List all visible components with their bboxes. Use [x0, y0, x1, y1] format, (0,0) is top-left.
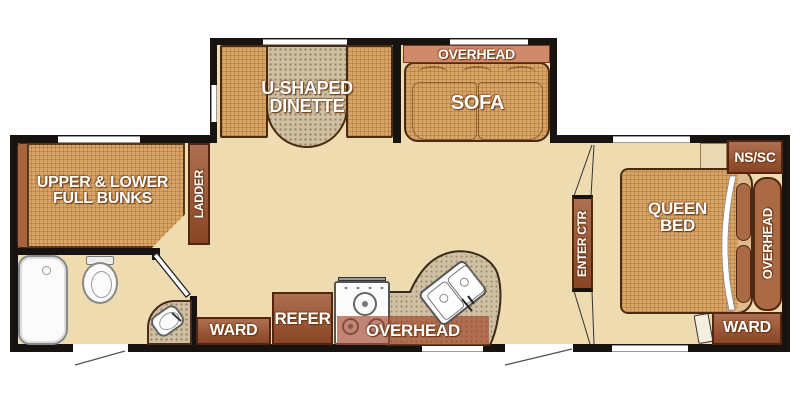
- nightstand-shirt-closet: NS/SC: [727, 140, 783, 174]
- queen-bed-label: QUEEN BED: [630, 196, 725, 238]
- floor-plan: UPPER & LOWER FULL BUNKS LADDER U-SHAPED…: [0, 0, 800, 400]
- dinette-label: U-SHAPED DINETTE: [247, 76, 367, 118]
- sofa-label: SOFA: [420, 88, 535, 118]
- tub-drain: [42, 266, 51, 275]
- toilet-bowl: [91, 271, 112, 298]
- sofa-overhead-cabinet: OVERHEAD: [403, 45, 550, 63]
- bedroom-overhead-label: OVERHEAD: [761, 208, 774, 279]
- enter-ctr-label: ENTER CTR: [576, 211, 588, 277]
- refer-label: REFER: [274, 310, 330, 327]
- bunks-label-text: UPPER & LOWER FULL BUNKS: [37, 175, 169, 208]
- bedroom-overhead-cabinet: OVERHEAD: [753, 177, 782, 311]
- refrigerator: REFER: [272, 292, 333, 345]
- ns-sc-label: NS/SC: [734, 150, 775, 164]
- queen-bed-label-text: QUEEN BED: [643, 200, 713, 235]
- stove-burner-large: [353, 292, 377, 316]
- sofa-overhead-label: OVERHEAD: [438, 47, 515, 61]
- toilet: [82, 262, 118, 304]
- bathtub: [18, 255, 68, 345]
- sofa-label-text: SOFA: [451, 93, 504, 113]
- entertainment-center: ENTER CTR: [572, 195, 593, 292]
- kitchen-ward-label: WARD: [210, 323, 258, 339]
- bunks-label: UPPER & LOWER FULL BUNKS: [35, 160, 170, 222]
- bedroom-wardrobe: WARD: [712, 312, 782, 345]
- bed-pillow-bottom: [736, 245, 751, 303]
- kitchen-overhead-cabinet: OVERHEAD: [337, 316, 489, 345]
- kitchen-wardrobe: WARD: [196, 317, 271, 345]
- bed-pillow-top: [736, 183, 751, 241]
- stove-knobs: [340, 285, 388, 291]
- bedroom-ward-label: WARD: [723, 320, 771, 336]
- bunk-ladder: LADDER: [188, 143, 210, 245]
- dinette-label-text: U-SHAPED DINETTE: [247, 79, 367, 116]
- ladder-label: LADDER: [193, 170, 205, 218]
